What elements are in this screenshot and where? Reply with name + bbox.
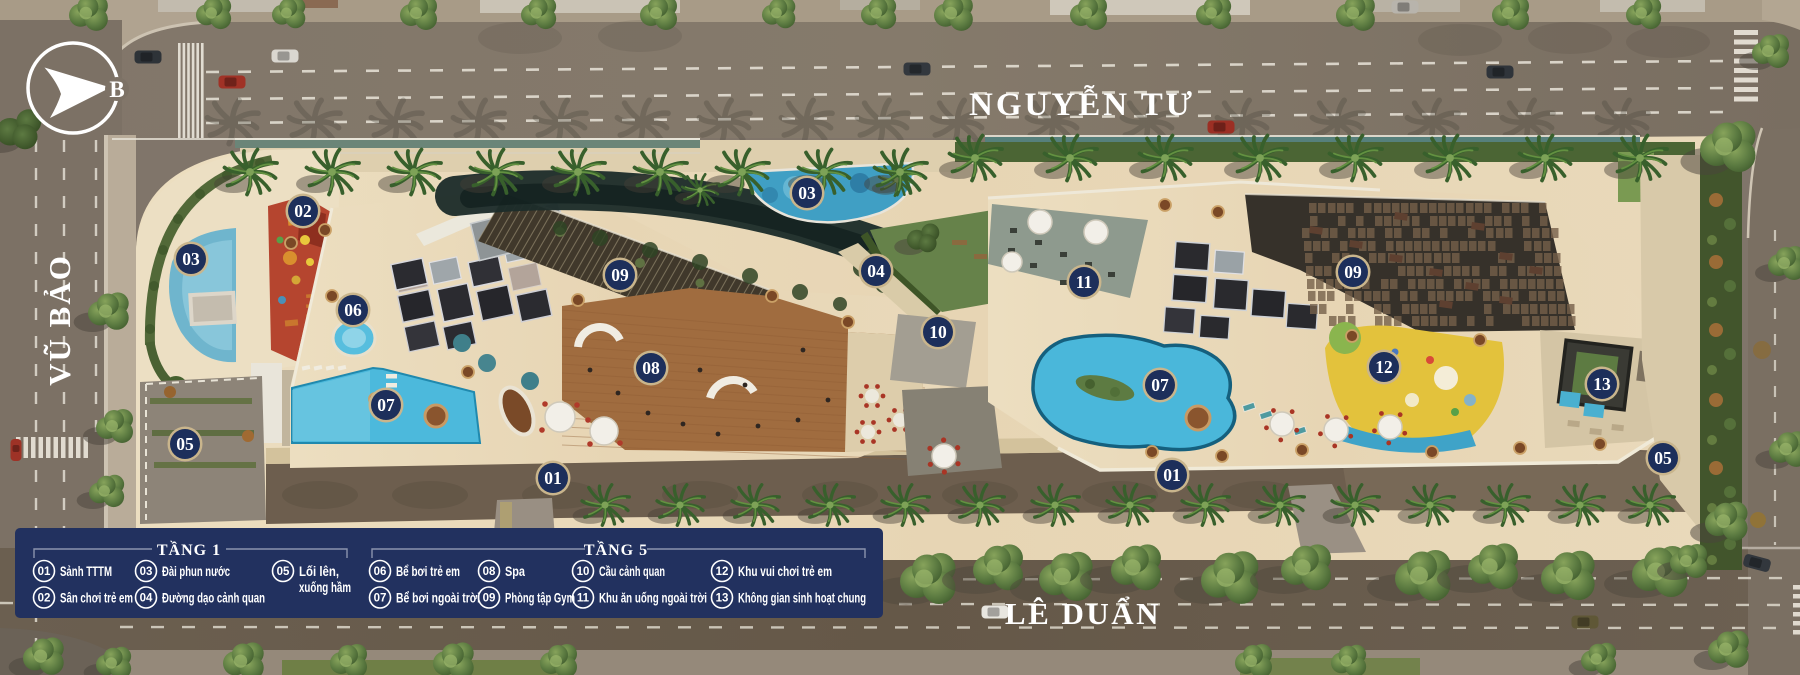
svg-text:Bể bơi trẻ em: Bể bơi trẻ em xyxy=(396,564,460,579)
svg-text:Khu vui chơi trẻ em: Khu vui chơi trẻ em xyxy=(738,564,832,579)
svg-text:02: 02 xyxy=(38,593,51,605)
svg-text:06: 06 xyxy=(374,566,387,578)
svg-text:01: 01 xyxy=(1163,465,1181,485)
svg-text:09: 09 xyxy=(1344,262,1362,282)
svg-text:04: 04 xyxy=(867,261,885,281)
svg-text:LÊ DUẨN: LÊ DUẨN xyxy=(1005,596,1161,631)
svg-text:Spa: Spa xyxy=(505,564,525,579)
svg-text:Phòng tập Gym: Phòng tập Gym xyxy=(505,591,575,606)
svg-text:05: 05 xyxy=(176,434,194,454)
svg-text:04: 04 xyxy=(140,593,153,605)
svg-text:Sân chơi trẻ em: Sân chơi trẻ em xyxy=(60,591,133,606)
svg-text:02: 02 xyxy=(294,201,312,221)
svg-text:Đài phun nước: Đài phun nước xyxy=(162,564,230,579)
svg-text:B: B xyxy=(109,77,124,102)
svg-text:07: 07 xyxy=(377,395,395,415)
svg-text:Cầu cảnh quan: Cầu cảnh quan xyxy=(599,564,665,579)
svg-text:Khu ăn uống ngoài trời: Khu ăn uống ngoài trời xyxy=(599,591,707,606)
svg-text:09: 09 xyxy=(483,593,496,605)
svg-text:07: 07 xyxy=(374,593,387,605)
svg-text:TẦNG 5: TẦNG 5 xyxy=(584,540,648,559)
svg-text:Sảnh TTTM: Sảnh TTTM xyxy=(60,564,112,579)
svg-text:VŨ BẢO: VŨ BẢO xyxy=(42,254,77,386)
svg-text:06: 06 xyxy=(344,300,362,320)
svg-text:10: 10 xyxy=(929,322,947,342)
svg-text:09: 09 xyxy=(611,265,629,285)
svg-text:Bể bơi ngoài trời: Bể bơi ngoài trời xyxy=(396,591,480,606)
svg-text:03: 03 xyxy=(140,566,153,578)
svg-text:Không gian sinh hoạt chung: Không gian sinh hoạt chung xyxy=(738,591,866,606)
svg-text:05: 05 xyxy=(1654,448,1672,468)
svg-text:13: 13 xyxy=(1593,374,1611,394)
svg-text:Lối lên,: Lối lên, xyxy=(299,564,339,579)
svg-text:05: 05 xyxy=(277,566,290,578)
svg-text:10: 10 xyxy=(577,566,590,578)
svg-text:NGUYỄN TƯ: NGUYỄN TƯ xyxy=(969,84,1195,123)
svg-text:TẦNG 1: TẦNG 1 xyxy=(157,540,221,559)
svg-text:11: 11 xyxy=(577,593,590,605)
svg-text:Đường dạo cảnh quan: Đường dạo cảnh quan xyxy=(162,591,265,606)
svg-text:xuống hầm: xuống hầm xyxy=(299,580,351,595)
svg-text:03: 03 xyxy=(798,183,816,203)
svg-text:12: 12 xyxy=(1375,357,1393,377)
svg-text:01: 01 xyxy=(38,566,51,578)
svg-text:13: 13 xyxy=(716,593,729,605)
svg-text:03: 03 xyxy=(182,249,200,269)
svg-text:11: 11 xyxy=(1076,272,1093,292)
svg-text:12: 12 xyxy=(716,566,729,578)
svg-text:07: 07 xyxy=(1151,375,1169,395)
svg-text:08: 08 xyxy=(642,358,660,378)
svg-text:01: 01 xyxy=(544,468,562,488)
svg-text:08: 08 xyxy=(483,566,496,578)
